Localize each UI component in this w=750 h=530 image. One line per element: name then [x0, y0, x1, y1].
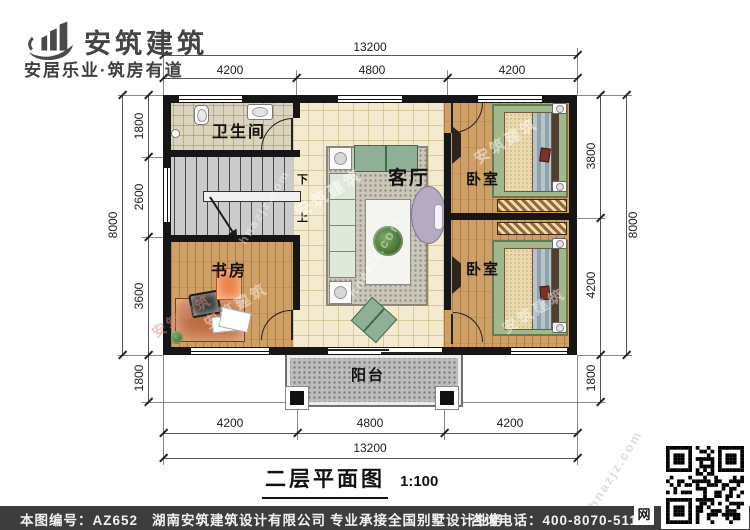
window [477, 95, 543, 103]
ext-line [142, 402, 285, 403]
dim-line [163, 78, 577, 79]
drawing-title-row: 二层平面图 1:100 [262, 463, 438, 499]
dim-label: 1800 [132, 348, 146, 408]
drawing-number: 本图编号：AZ652 [20, 509, 138, 529]
balcony-label: 阳台 [351, 364, 385, 385]
dim-label: 4200 [584, 255, 598, 315]
wardrobe [497, 222, 567, 235]
nightstand [552, 181, 567, 192]
web-badge: 网 [634, 505, 654, 525]
ext-line [447, 70, 448, 95]
bed-bench [539, 147, 551, 162]
stair-rail [203, 191, 301, 202]
phone-text: 咨询电话：400-8070-511 [470, 509, 638, 529]
living-label: 客厅 [388, 163, 430, 190]
wall [293, 95, 300, 118]
dim-label: 3800 [584, 126, 598, 186]
window [510, 347, 568, 355]
toilet [194, 105, 209, 125]
door-leaf [291, 118, 293, 150]
company-name: 湖南安筑建筑设计有限公司 [152, 509, 326, 529]
drawing-title: 二层平面图 [262, 463, 388, 499]
dim-label: 2600 [132, 167, 146, 227]
stair-up-label: 上 [297, 209, 308, 225]
ext-line [163, 355, 164, 465]
ext-line [296, 70, 297, 95]
nightstand [552, 238, 567, 249]
dim-label: 4200 [200, 416, 260, 430]
dim-line [163, 458, 577, 459]
wall [163, 150, 300, 157]
dim-label: 4200 [480, 416, 540, 430]
headboard [552, 112, 559, 192]
dim-line [122, 95, 123, 355]
balcony-column [286, 387, 308, 409]
bedroom-bottom-label: 卧室 [466, 258, 500, 279]
window [163, 167, 171, 223]
wall [163, 95, 171, 355]
wall [569, 95, 577, 355]
dim-label: 8000 [626, 195, 640, 255]
headboard [552, 248, 559, 330]
watermark: hnazjz.com [585, 427, 645, 511]
dim-label: 4200 [200, 63, 260, 77]
window [178, 95, 243, 103]
dim-label: 13200 [340, 441, 400, 455]
wall [293, 235, 300, 310]
sofa [329, 173, 356, 278]
wall [163, 235, 300, 242]
dim-label: 1800 [584, 348, 598, 408]
wardrobe [497, 199, 567, 212]
table-highlight [434, 204, 443, 230]
side-table [329, 281, 352, 304]
plant [170, 331, 183, 344]
dim-label: 3600 [132, 266, 146, 326]
door-leaf [451, 103, 453, 133]
dim-label: 8000 [106, 195, 120, 255]
dim-line [163, 433, 577, 434]
floor-drain [171, 129, 180, 138]
balcony-column [436, 387, 458, 409]
wall [444, 213, 577, 220]
round-table [411, 186, 446, 244]
dim-label: 4800 [342, 63, 402, 77]
drawing-scale: 1:100 [400, 473, 438, 490]
sliding-door-panel [327, 349, 389, 351]
window [190, 347, 270, 355]
study-label: 书房 [211, 257, 247, 281]
dim-label: 4200 [482, 63, 542, 77]
dim-label: 1800 [132, 96, 146, 156]
bathroom-label: 卫生间 [212, 118, 266, 142]
nightstand [552, 322, 567, 333]
door-leaf [291, 310, 293, 340]
brand-tagline: 安居乐业·筑房有道 [24, 56, 184, 81]
ext-line [297, 408, 298, 440]
qr-code-image [661, 441, 749, 529]
floor-plan-sheet: 安筑建筑 安居乐业·筑房有道 下 上 [0, 0, 750, 530]
nightstand [552, 103, 567, 114]
wall [444, 133, 451, 310]
qr-code [661, 441, 749, 529]
dim-line [163, 55, 577, 56]
bed-bench [539, 286, 550, 301]
stair-down-label: 下 [297, 171, 308, 187]
brand-logo-icon [22, 14, 80, 62]
door-leaf [451, 314, 453, 344]
table-plant [373, 226, 403, 256]
dim-label: 13200 [340, 40, 400, 54]
window [337, 95, 403, 103]
side-table [329, 147, 352, 170]
dim-label: 4800 [340, 416, 400, 430]
ext-line [444, 408, 445, 440]
ext-line [577, 355, 578, 465]
bedroom-top-label: 卧室 [466, 168, 500, 189]
sliding-door-panel [381, 352, 443, 354]
